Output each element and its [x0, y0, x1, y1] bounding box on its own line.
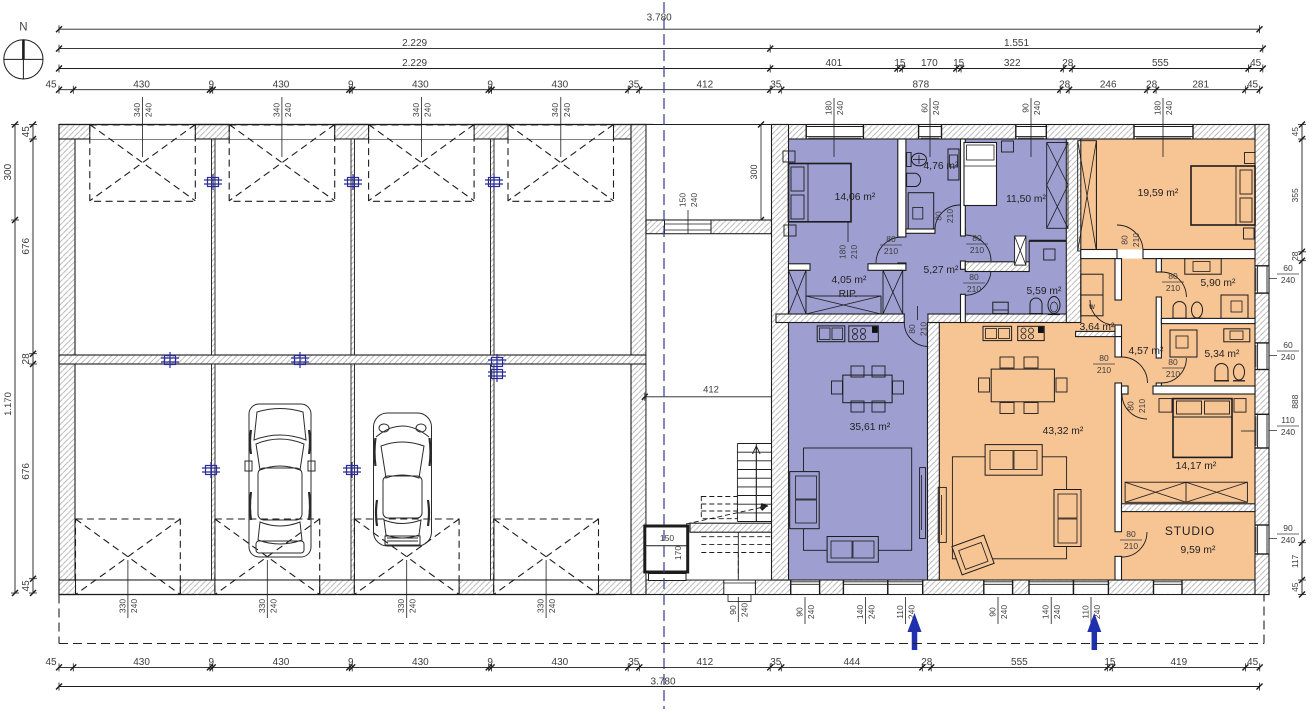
- svg-text:110: 110: [895, 605, 905, 619]
- svg-text:340: 340: [132, 103, 142, 117]
- svg-text:210: 210: [919, 322, 929, 336]
- svg-text:340: 340: [411, 103, 421, 117]
- svg-text:180: 180: [838, 245, 848, 259]
- svg-text:140: 140: [855, 605, 865, 619]
- svg-text:5,90 m²: 5,90 m²: [1201, 278, 1236, 289]
- svg-text:80: 80: [972, 233, 982, 243]
- svg-text:45: 45: [1247, 657, 1259, 668]
- svg-text:15: 15: [1104, 657, 1116, 668]
- svg-text:240: 240: [835, 101, 845, 115]
- svg-text:80: 80: [969, 272, 979, 282]
- svg-text:240: 240: [268, 599, 278, 613]
- svg-text:412: 412: [696, 79, 713, 90]
- svg-text:90: 90: [795, 607, 805, 617]
- svg-text:STUDIO: STUDIO: [1165, 524, 1215, 538]
- svg-text:9: 9: [209, 657, 215, 668]
- svg-text:45: 45: [1247, 79, 1259, 90]
- svg-text:28: 28: [1290, 251, 1300, 261]
- svg-text:240: 240: [1032, 101, 1042, 115]
- svg-text:210: 210: [1137, 399, 1147, 413]
- svg-text:430: 430: [133, 657, 150, 668]
- svg-text:15: 15: [953, 58, 965, 69]
- svg-text:9: 9: [209, 79, 215, 90]
- svg-text:430: 430: [412, 79, 429, 90]
- svg-text:60: 60: [1283, 263, 1293, 273]
- svg-text:3,64 m²: 3,64 m²: [1080, 322, 1115, 333]
- svg-text:340: 340: [271, 103, 281, 117]
- svg-text:240: 240: [1281, 275, 1295, 285]
- svg-text:210: 210: [1124, 541, 1138, 551]
- svg-text:1.170: 1.170: [3, 392, 14, 416]
- svg-text:140: 140: [1041, 605, 1051, 619]
- svg-text:430: 430: [133, 79, 150, 90]
- svg-text:14,06 m²: 14,06 m²: [835, 192, 876, 203]
- svg-text:210: 210: [945, 209, 955, 223]
- svg-text:35,61 m²: 35,61 m²: [850, 422, 891, 433]
- svg-text:4,57 m²: 4,57 m²: [1129, 346, 1164, 357]
- svg-text:676: 676: [21, 238, 32, 255]
- svg-text:15: 15: [894, 58, 906, 69]
- svg-text:45: 45: [1290, 127, 1300, 137]
- svg-text:240: 240: [129, 599, 139, 613]
- svg-text:240: 240: [689, 193, 699, 207]
- svg-text:60: 60: [1283, 340, 1293, 350]
- svg-text:240: 240: [283, 103, 293, 117]
- svg-text:14,17 m²: 14,17 m²: [1176, 461, 1217, 472]
- svg-text:19,59 m²: 19,59 m²: [1138, 188, 1179, 199]
- svg-text:80: 80: [907, 324, 917, 334]
- svg-text:240: 240: [1164, 101, 1174, 115]
- svg-text:555: 555: [1011, 657, 1028, 668]
- svg-text:430: 430: [552, 657, 569, 668]
- svg-text:4,76 m²: 4,76 m²: [924, 161, 959, 172]
- svg-text:180: 180: [824, 101, 834, 115]
- svg-text:150: 150: [660, 533, 674, 543]
- svg-text:80: 80: [1099, 353, 1109, 363]
- svg-text:210: 210: [884, 246, 898, 256]
- svg-text:240: 240: [422, 103, 432, 117]
- svg-text:28: 28: [21, 353, 32, 365]
- svg-text:28: 28: [1059, 79, 1071, 90]
- svg-text:430: 430: [412, 657, 429, 668]
- svg-text:45: 45: [45, 79, 57, 90]
- svg-text:35: 35: [770, 657, 782, 668]
- svg-text:210: 210: [849, 245, 859, 259]
- svg-text:322: 322: [1004, 58, 1021, 69]
- svg-text:210: 210: [1166, 369, 1180, 379]
- svg-text:300: 300: [749, 164, 759, 179]
- svg-text:170: 170: [673, 546, 683, 560]
- svg-text:80: 80: [1126, 529, 1136, 539]
- svg-text:240: 240: [1052, 605, 1062, 619]
- svg-text:117: 117: [1290, 554, 1300, 568]
- svg-text:4,05 m²: 4,05 m²: [832, 275, 867, 286]
- svg-text:878: 878: [912, 79, 929, 90]
- svg-text:9: 9: [487, 79, 493, 90]
- svg-text:240: 240: [1281, 352, 1295, 362]
- svg-text:240: 240: [867, 605, 877, 619]
- svg-text:28: 28: [1062, 58, 1074, 69]
- svg-text:300: 300: [3, 163, 14, 180]
- svg-text:90: 90: [728, 605, 738, 615]
- svg-text:888: 888: [1290, 394, 1300, 408]
- svg-text:9: 9: [348, 657, 354, 668]
- svg-text:1.551: 1.551: [1004, 38, 1029, 49]
- svg-text:45: 45: [1290, 582, 1300, 592]
- svg-text:35: 35: [628, 79, 640, 90]
- svg-text:430: 430: [552, 79, 569, 90]
- svg-text:2.229: 2.229: [402, 38, 427, 49]
- svg-text:355: 355: [1290, 188, 1300, 202]
- svg-text:246: 246: [1100, 79, 1117, 90]
- svg-text:430: 430: [273, 79, 290, 90]
- svg-text:110: 110: [1281, 415, 1295, 425]
- svg-text:80: 80: [1168, 271, 1178, 281]
- svg-text:330: 330: [117, 599, 127, 613]
- svg-text:330: 330: [536, 599, 546, 613]
- svg-text:210: 210: [1097, 365, 1111, 375]
- svg-text:419: 419: [1170, 657, 1187, 668]
- svg-text:9,59 m²: 9,59 m²: [1181, 545, 1216, 556]
- svg-text:555: 555: [1152, 58, 1169, 69]
- svg-text:281: 281: [1192, 79, 1209, 90]
- svg-text:5,34 m²: 5,34 m²: [1205, 349, 1240, 360]
- svg-text:170: 170: [921, 58, 938, 69]
- svg-text:90: 90: [988, 607, 998, 617]
- svg-text:35: 35: [628, 657, 640, 668]
- svg-text:240: 240: [999, 605, 1009, 619]
- svg-text:210: 210: [1166, 283, 1180, 293]
- svg-text:240: 240: [562, 103, 572, 117]
- svg-text:240: 240: [931, 101, 941, 115]
- svg-text:240: 240: [1281, 535, 1295, 545]
- svg-text:401: 401: [826, 58, 843, 69]
- svg-text:N: N: [19, 22, 27, 34]
- svg-text:45: 45: [1250, 58, 1262, 69]
- svg-text:90: 90: [1021, 103, 1031, 113]
- svg-text:210: 210: [1131, 233, 1141, 247]
- svg-text:80: 80: [886, 234, 896, 244]
- svg-text:80: 80: [1126, 401, 1136, 411]
- svg-text:9: 9: [348, 79, 354, 90]
- svg-text:43,32 m²: 43,32 m²: [1043, 426, 1084, 437]
- svg-text:210: 210: [970, 245, 984, 255]
- svg-text:240: 240: [144, 103, 154, 117]
- svg-text:240: 240: [739, 603, 749, 617]
- svg-text:45: 45: [21, 580, 32, 592]
- svg-text:35: 35: [770, 79, 782, 90]
- svg-text:5,27 m²: 5,27 m²: [924, 265, 959, 276]
- svg-text:28: 28: [1146, 79, 1158, 90]
- svg-text:240: 240: [1281, 427, 1295, 437]
- svg-text:340: 340: [550, 103, 560, 117]
- svg-text:412: 412: [696, 657, 713, 668]
- svg-text:RIP.: RIP.: [839, 289, 858, 300]
- svg-text:w: w: [1088, 302, 1095, 311]
- svg-text:11,50 m²: 11,50 m²: [1006, 194, 1046, 205]
- svg-text:110: 110: [1081, 605, 1091, 619]
- svg-text:210: 210: [967, 284, 981, 294]
- svg-text:9: 9: [487, 657, 493, 668]
- svg-text:60: 60: [920, 103, 930, 113]
- svg-text:2.229: 2.229: [402, 58, 427, 69]
- svg-text:240: 240: [806, 605, 816, 619]
- svg-text:80: 80: [1120, 235, 1130, 245]
- svg-text:330: 330: [396, 599, 406, 613]
- svg-text:430: 430: [273, 657, 290, 668]
- svg-text:180: 180: [1153, 101, 1163, 115]
- svg-text:80: 80: [1168, 357, 1178, 367]
- svg-text:330: 330: [257, 599, 267, 613]
- svg-text:150: 150: [678, 193, 688, 207]
- svg-text:45: 45: [21, 126, 32, 138]
- svg-text:80: 80: [934, 211, 944, 221]
- svg-text:412: 412: [703, 385, 719, 396]
- svg-text:5,59 m²: 5,59 m²: [1027, 286, 1062, 297]
- svg-text:45: 45: [45, 657, 57, 668]
- svg-text:676: 676: [21, 463, 32, 480]
- svg-text:3.780: 3.780: [650, 676, 675, 687]
- svg-text:3.780: 3.780: [647, 13, 672, 24]
- svg-text:28: 28: [921, 657, 933, 668]
- svg-text:240: 240: [408, 599, 418, 613]
- svg-text:90: 90: [1283, 523, 1293, 533]
- svg-text:240: 240: [547, 599, 557, 613]
- svg-text:444: 444: [843, 657, 860, 668]
